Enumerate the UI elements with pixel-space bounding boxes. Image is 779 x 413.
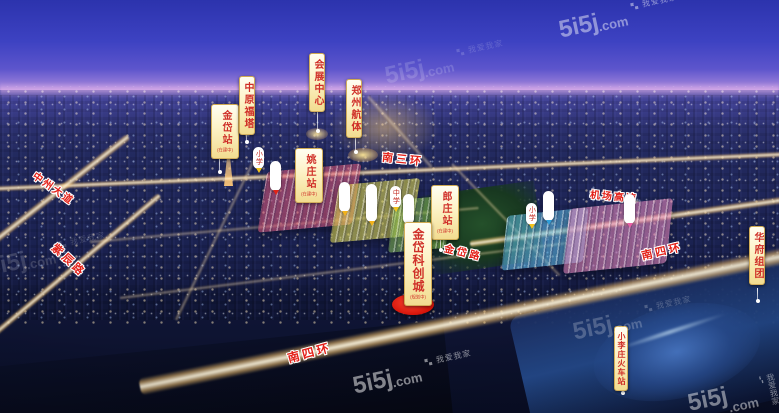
- landmark-name: 中原福塔: [242, 82, 252, 130]
- pin-label: 一号院: [272, 164, 279, 188]
- landmark-subtext: (在建中): [437, 230, 453, 234]
- landmark-label-convention-center: 会展中心: [309, 53, 325, 112]
- pin-yard-5: 五号院: [543, 191, 554, 228]
- pin-label: 小学: [255, 150, 262, 166]
- pin-culture-sports-venue: 文体场馆: [366, 184, 377, 229]
- landmark-name: 郑州航体: [349, 85, 359, 133]
- pin-tail-icon: [273, 190, 279, 198]
- night-aerial-location-map: 金岱站 (在建中) 中原福塔 会展中心 郑州航体 姚庄站 (在建中) 郎庄站 (…: [0, 0, 779, 413]
- watermark-logo-icon: [645, 304, 653, 312]
- stadium-glow: [348, 148, 378, 162]
- pin-primary-school-east: 小学: [526, 203, 537, 232]
- pin-middle-school: 中学: [390, 186, 401, 215]
- pin-label: 三号院: [341, 185, 348, 209]
- landmark-name: 会展中心: [312, 59, 322, 107]
- pin-label: 小学: [528, 206, 535, 222]
- landmark-subtext: (在建中): [301, 193, 317, 197]
- pointer-line: [757, 288, 758, 301]
- pin-label: 中学: [392, 189, 399, 205]
- landmark-label-langzhuang-station: 郎庄站 (在建中): [431, 185, 459, 240]
- landmark-name: 郎庄站: [440, 191, 450, 227]
- pin-yard-6: 六号院: [624, 194, 635, 231]
- landmark-subtext: (规划中): [410, 296, 426, 300]
- pin-tail-icon: [342, 211, 348, 219]
- landmark-label-jindai-station: 金岱站 (在建中): [211, 104, 239, 159]
- watermark-logo-icon: [631, 2, 639, 10]
- pin-yard-3: 三号院: [339, 182, 350, 219]
- pin-yard-1: 一号院: [270, 161, 281, 198]
- landmark-label-huafu-cluster: 华府组团: [749, 226, 765, 285]
- landmark-label-zhongyuan-tower: 中原福塔: [239, 76, 255, 135]
- pin-tail-icon: [369, 221, 375, 229]
- cluster-zone-pink: [563, 198, 673, 274]
- landmark-name: 华府组团: [752, 232, 762, 280]
- pin-label: 文体场馆: [368, 187, 375, 219]
- pin-tail-icon: [546, 220, 552, 228]
- watermark-logo-icon: [457, 48, 465, 56]
- pin-label: 五号院: [545, 194, 552, 218]
- landmark-label-jindai-science-city: 金岱科创城 (规划中): [404, 222, 432, 306]
- pin-tail-icon: [529, 224, 535, 232]
- landmark-subtext: (在建中): [217, 149, 233, 153]
- landmark-label-zhengzhou-hangti: 郑州航体: [346, 79, 362, 138]
- watermark-logo-icon: [425, 358, 433, 366]
- pin-primary-school-west: 小学: [253, 147, 264, 176]
- pointer-line: [355, 136, 356, 152]
- watermark-logo-icon: [59, 240, 67, 248]
- watermark-logo-icon: [759, 376, 763, 383]
- landmark-label-yaozhuang-station: 姚庄站 (在建中): [295, 148, 323, 203]
- pin-tail-icon: [393, 207, 399, 215]
- pin-tail-icon: [627, 223, 633, 231]
- landmark-name: 姚庄站: [304, 154, 314, 190]
- watermark-slogan: 我爱我家: [641, 0, 678, 9]
- landmark-name: 金岱科创城: [412, 228, 424, 293]
- pin-tail-icon: [256, 168, 262, 176]
- pin-label: 四号院: [405, 197, 412, 221]
- pin-label: 六号院: [626, 197, 633, 221]
- landmark-name: 小李庄火车站: [617, 332, 625, 386]
- landmark-name: 金岱站: [220, 110, 230, 146]
